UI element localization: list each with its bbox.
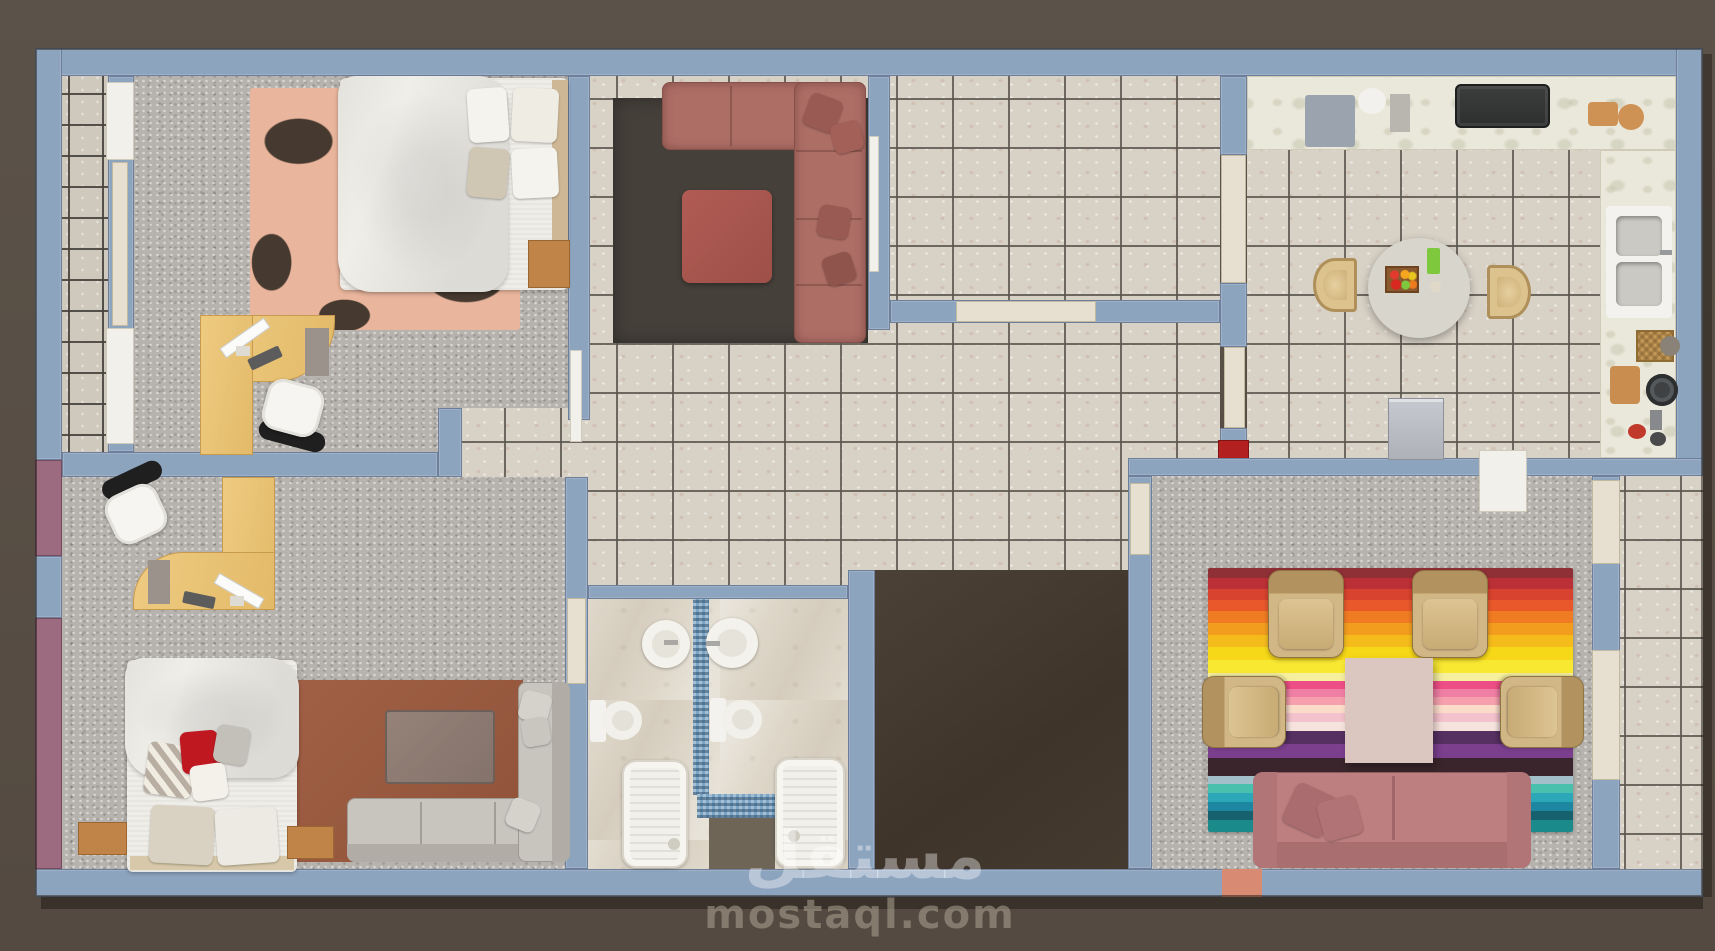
shadow-right — [1703, 54, 1712, 897]
floor-plan-canvas: مستقل mostaql.com — [0, 0, 1715, 951]
plan-frame — [35, 48, 1703, 897]
watermark-domain: mostaql.com — [640, 890, 1080, 940]
